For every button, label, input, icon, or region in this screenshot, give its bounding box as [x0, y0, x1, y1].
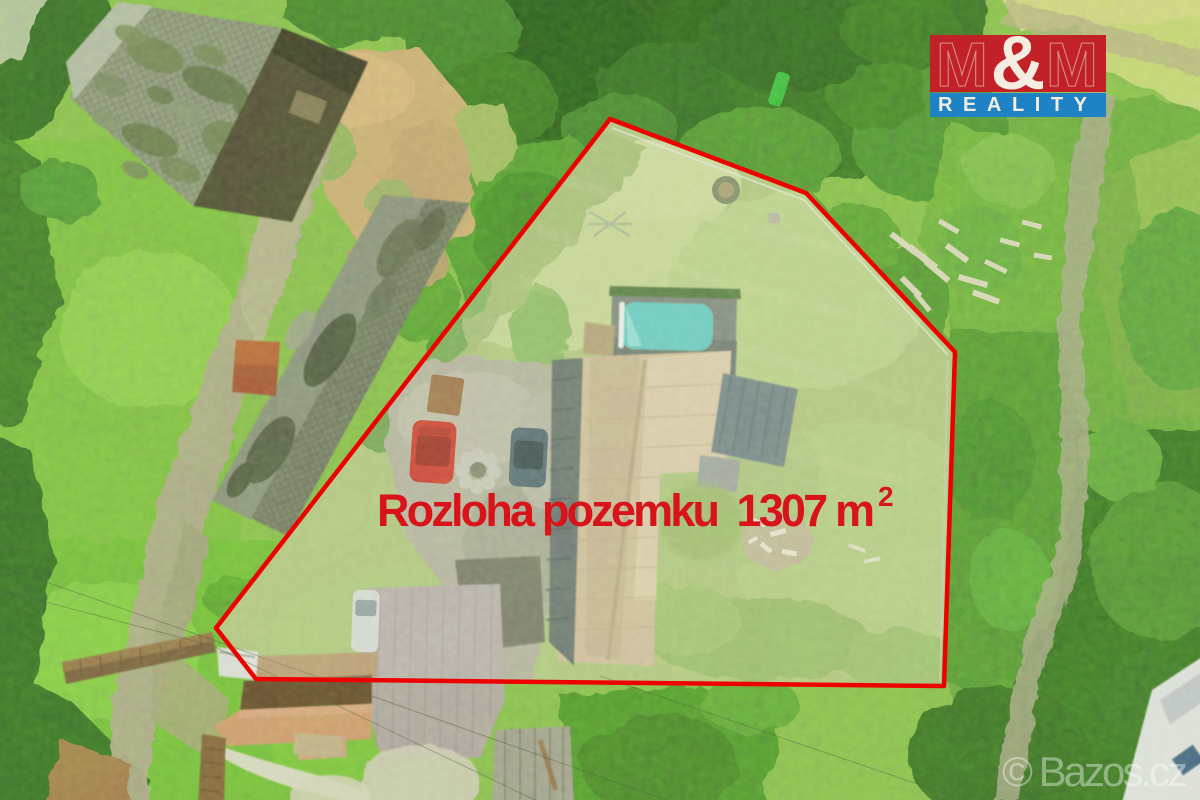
svg-text:© Bazos.cz: © Bazos.cz — [1002, 748, 1188, 795]
svg-text:M: M — [936, 31, 988, 100]
svg-text:2: 2 — [878, 481, 894, 512]
svg-text:Rozloha pozemku 1307 m: Rozloha pozemku 1307 m — [377, 485, 875, 536]
svg-text:M: M — [1046, 31, 1098, 100]
